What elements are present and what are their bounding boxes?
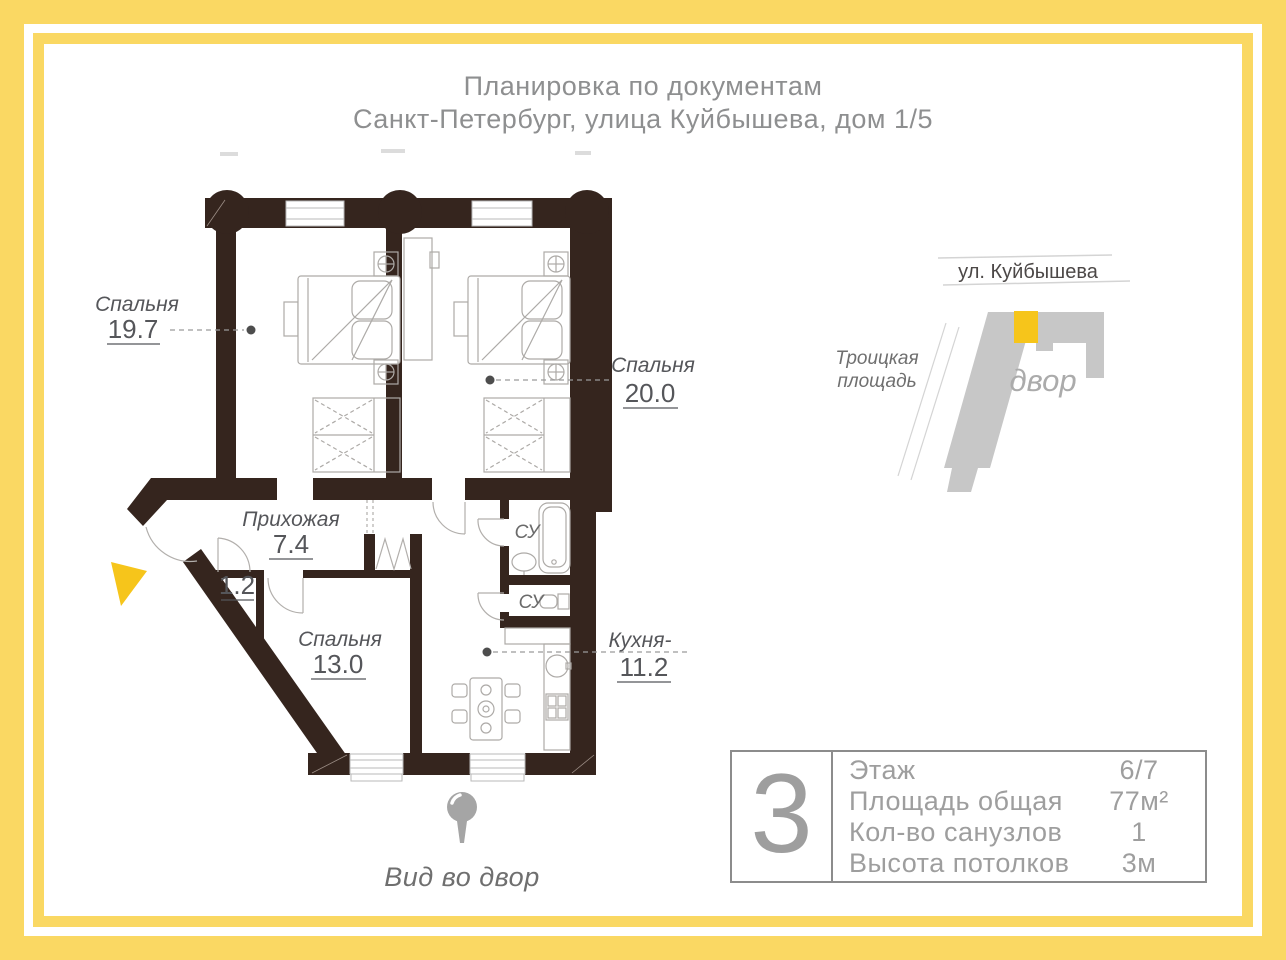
room-name: Прихожая — [242, 508, 339, 531]
room-area: 11.2 — [620, 652, 669, 682]
bathroom1-door-arc — [478, 519, 504, 546]
room-area: 13.0 — [313, 649, 364, 679]
info-rows: Этаж 6/7 Площадь общая 77м² Кол-во сануз… — [833, 752, 1205, 881]
bathtub-icon — [539, 503, 570, 573]
info-value: 77м² — [1083, 786, 1195, 817]
info-row-bathrooms: Кол-во санузлов 1 — [849, 817, 1195, 848]
room-name: Спальня — [611, 354, 695, 377]
info-label: Этаж — [849, 755, 1083, 786]
info-row-floor: Этаж 6/7 — [849, 755, 1195, 786]
room-label-bedroom3: Спальня 13.0 — [298, 628, 382, 679]
room-area: 1.2 — [219, 570, 255, 600]
floor-plan-drawing: Спальня 19.7 Спальня 20.0 Прихожая 7.4 1… — [95, 140, 710, 810]
location-minimap: ул. Куйбышева Троицкая площадь двор — [820, 240, 1220, 520]
street-label: ул. Куйбышева — [958, 261, 1099, 283]
info-value: 1 — [1083, 817, 1195, 848]
room-label-bathroom1: СУ — [515, 522, 542, 543]
room-name: Кухня- — [609, 629, 672, 652]
courtyard-view-note: Вид во двор — [377, 791, 547, 893]
closet-door-arc — [218, 538, 250, 572]
dining-table-icon — [452, 678, 520, 740]
entrance-arrow-icon — [111, 562, 147, 606]
square-street-line1 — [898, 323, 946, 476]
survey-ticks — [220, 149, 591, 156]
info-label: Площадь общая — [849, 786, 1083, 817]
wardrobe-icon-bedroom2-tall — [404, 238, 439, 360]
bedroom3-door-arc — [268, 578, 303, 613]
room-area: 7.4 — [273, 529, 309, 559]
bedroom2-door-arc — [433, 502, 465, 534]
room-name: Спальня — [95, 293, 179, 316]
bed-icon-bedroom1 — [284, 276, 400, 364]
info-value: 3м — [1083, 848, 1195, 879]
bed-icon-bedroom2 — [454, 276, 570, 364]
view-label: Вид во двор — [377, 862, 547, 893]
room-area: 19.7 — [108, 314, 159, 344]
toilet-icon — [540, 594, 569, 609]
info-label: Высота потолков — [849, 848, 1083, 879]
info-row-total-area: Площадь общая 77м² — [849, 786, 1195, 817]
rooms-count: 3 — [732, 752, 833, 881]
page-title: Планировка по документам Санкт-Петербург… — [0, 70, 1286, 136]
wardrobe-icon-bedroom2 — [484, 398, 570, 472]
title-line2: Санкт-Петербург, улица Куйбышева, дом 1/… — [0, 103, 1286, 136]
room-label-closet: 1.2 — [219, 570, 255, 600]
apartment-location-marker — [1014, 311, 1038, 343]
room-label-bathroom2: СУ — [519, 592, 546, 613]
info-row-ceiling-height: Высота потолков 3м — [849, 848, 1195, 879]
apartment-info-panel: 3 Этаж 6/7 Площадь общая 77м² Кол-во сан… — [730, 750, 1207, 883]
floorplan-page: Планировка по документам Санкт-Петербург… — [0, 0, 1286, 960]
entrance-door-arc — [146, 527, 197, 561]
room-area: 20.0 — [625, 378, 676, 408]
map-pin-icon — [440, 791, 484, 855]
square-label-line1: Троицкая — [835, 348, 918, 369]
sink-icon — [512, 553, 536, 575]
kitchen-counter-icon — [505, 628, 571, 750]
street-line-top — [938, 255, 1112, 258]
title-line1: Планировка по документам — [0, 70, 1286, 103]
square-label-line2: площадь — [837, 371, 916, 392]
info-value: 6/7 — [1083, 755, 1195, 786]
info-label: Кол-во санузлов — [849, 817, 1083, 848]
room-label-hallway: Прихожая 7.4 — [242, 508, 339, 559]
courtyard-label: двор — [1009, 363, 1076, 398]
room-name: Спальня — [298, 628, 382, 651]
